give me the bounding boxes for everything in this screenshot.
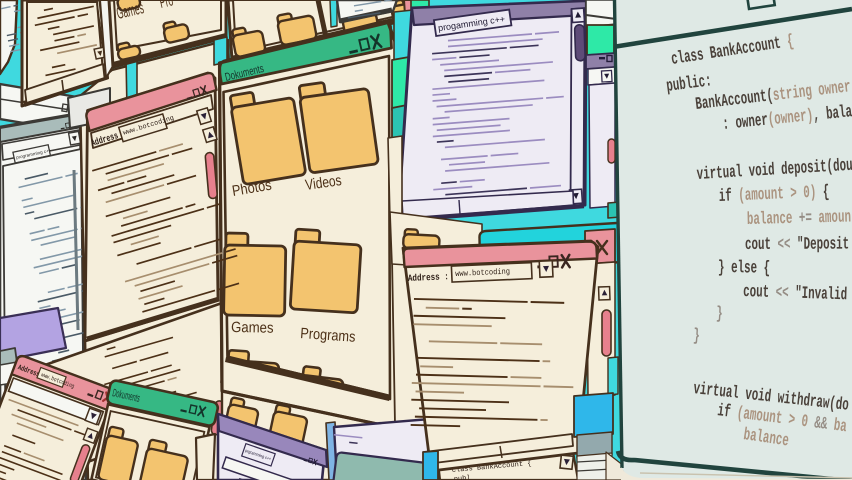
svg-text:} else {: } else { xyxy=(718,259,770,279)
svg-text:}: } xyxy=(716,305,723,325)
svg-text:}: } xyxy=(693,327,701,347)
svg-text:publ: publ xyxy=(454,475,471,480)
svg-text:balance += amoun: balance += amoun xyxy=(747,208,852,230)
svg-text:Games: Games xyxy=(231,318,274,336)
svg-text:cout << "Deposit: cout << "Deposit xyxy=(745,235,849,255)
svg-text:cout << "Invalid: cout << "Invalid xyxy=(743,283,848,306)
svg-text:Address :: Address : xyxy=(408,271,449,284)
